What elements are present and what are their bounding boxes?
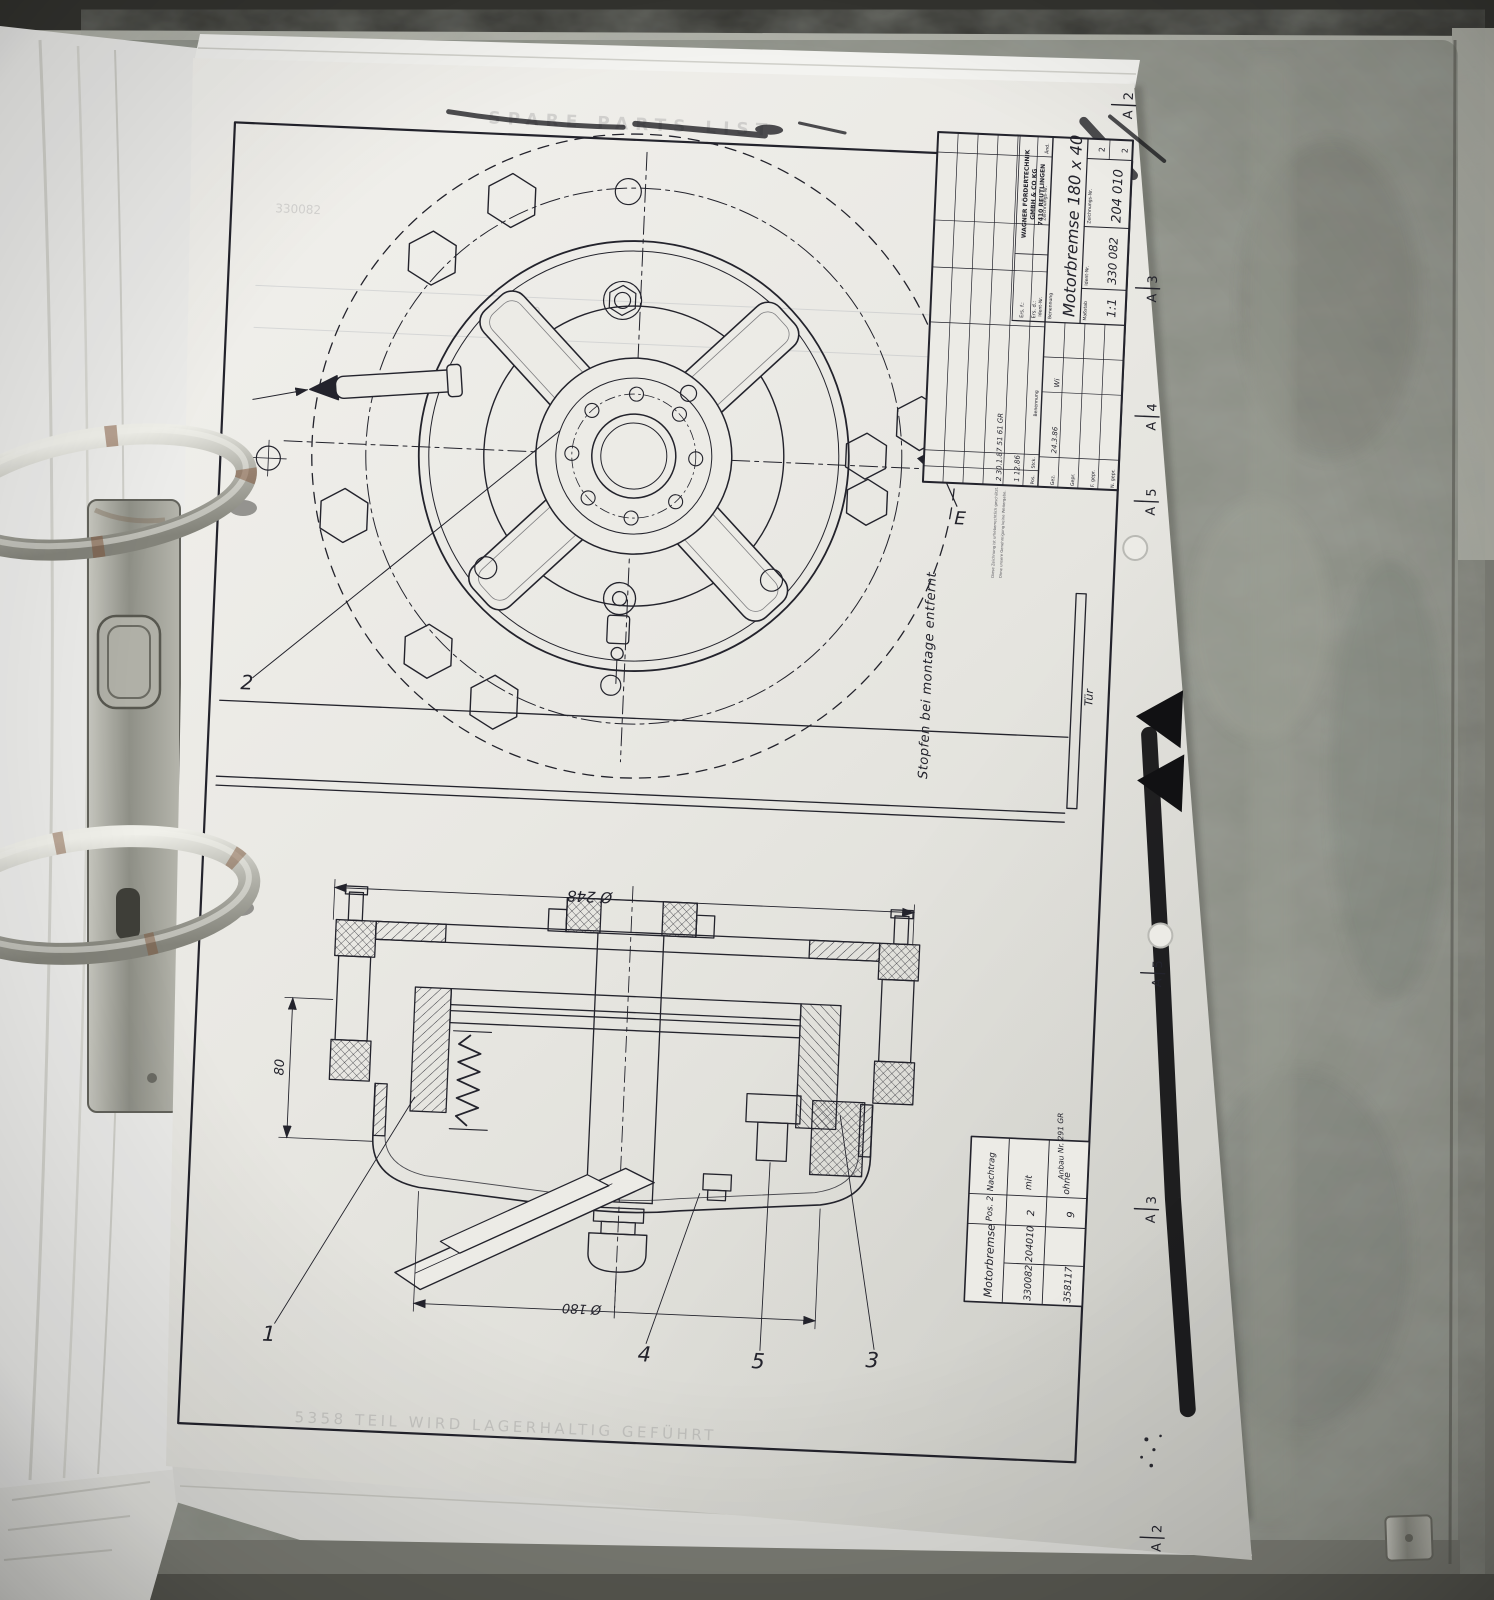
scene: SPARE PARTS LIST 330082 253 010 5358 TEI… xyxy=(0,0,1494,1600)
photo-vignette xyxy=(0,0,1494,1600)
photo-of-binder-with-drawing: SPARE PARTS LIST 330082 253 010 5358 TEI… xyxy=(0,0,1494,1600)
